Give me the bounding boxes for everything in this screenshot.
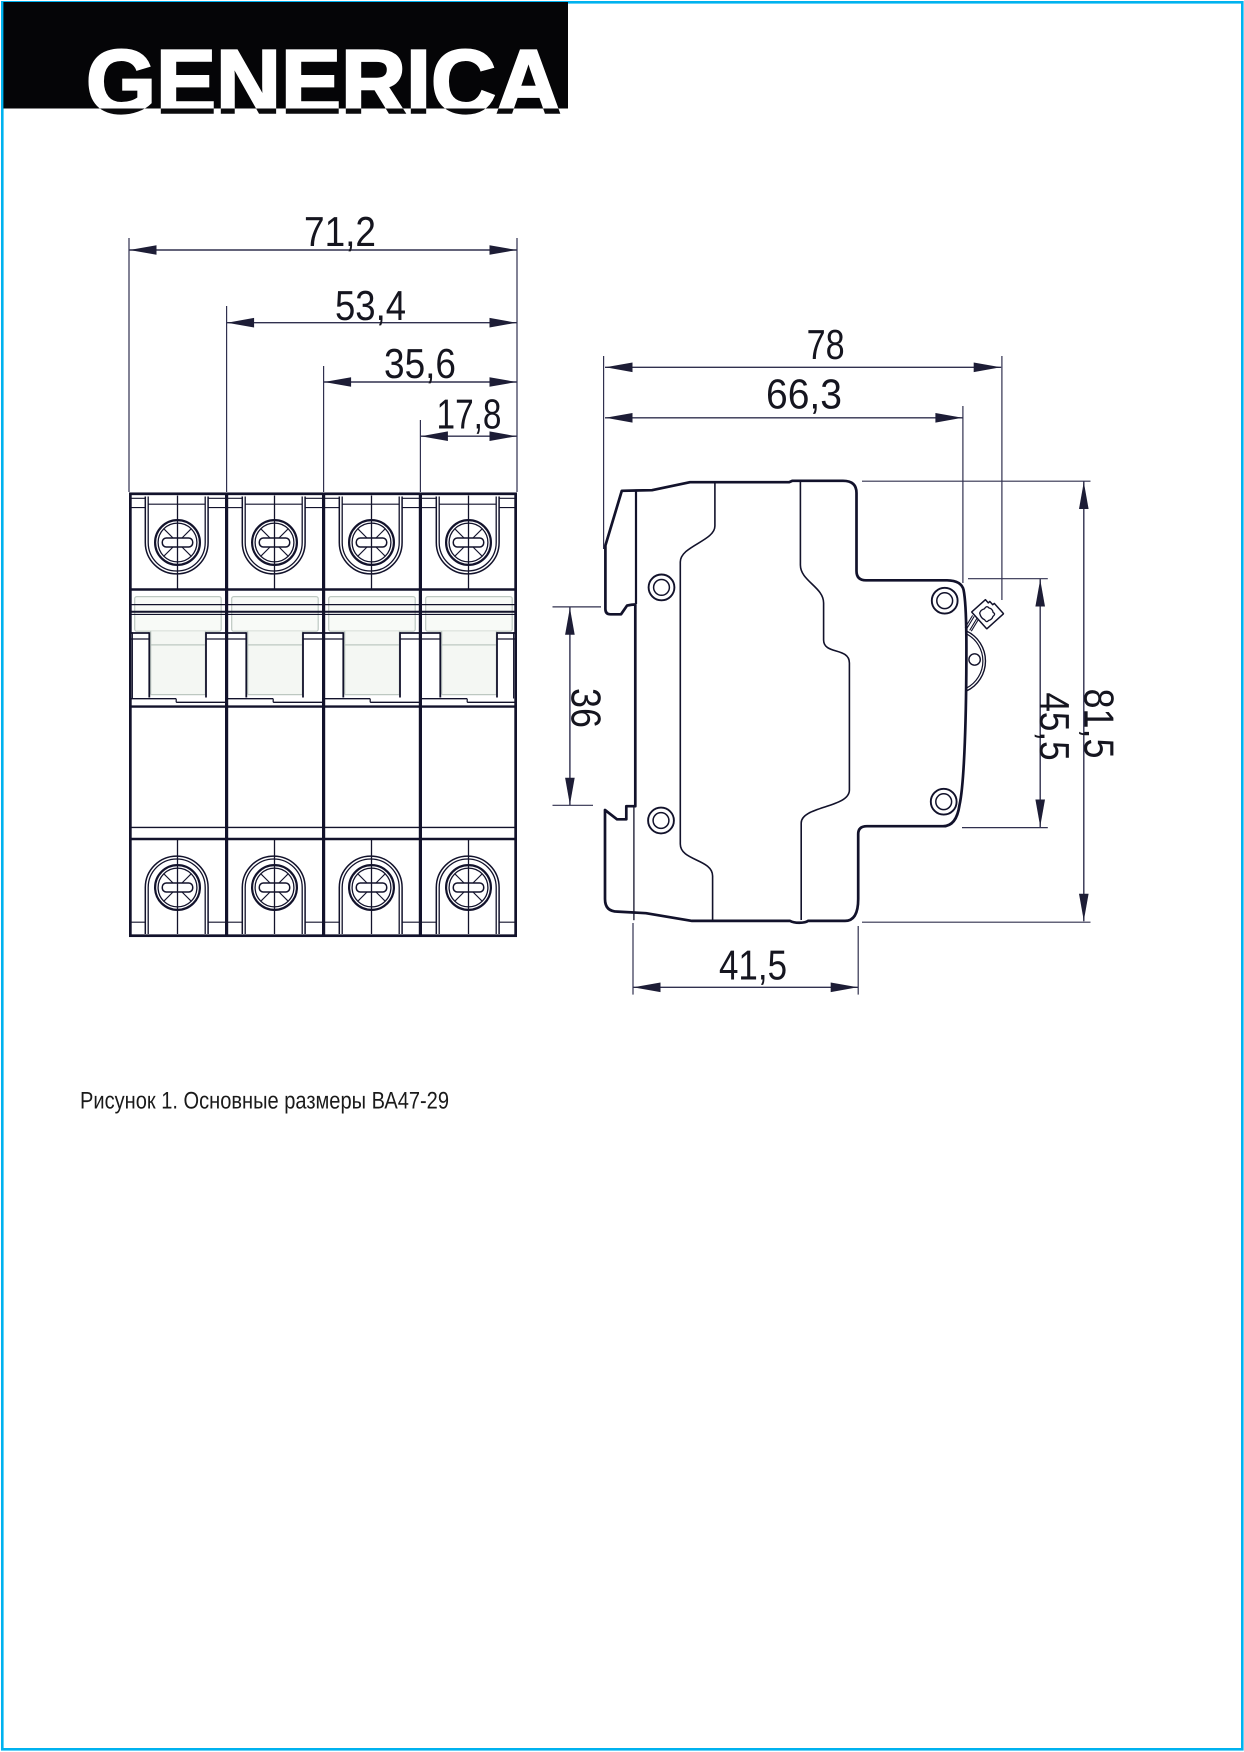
svg-text:45,5: 45,5 — [1031, 693, 1078, 761]
svg-text:Рисунок 1. Основные размеры ВА: Рисунок 1. Основные размеры ВА47-29 — [80, 1088, 449, 1115]
svg-text:41,5: 41,5 — [719, 942, 787, 989]
svg-text:17,8: 17,8 — [437, 391, 502, 438]
svg-text:35,6: 35,6 — [384, 340, 456, 387]
svg-text:66,3: 66,3 — [766, 371, 842, 418]
svg-text:53,4: 53,4 — [335, 282, 406, 329]
svg-text:78: 78 — [807, 321, 845, 368]
svg-text:36: 36 — [562, 688, 609, 728]
svg-text:81,5: 81,5 — [1076, 689, 1123, 759]
svg-text:71,2: 71,2 — [304, 208, 376, 255]
